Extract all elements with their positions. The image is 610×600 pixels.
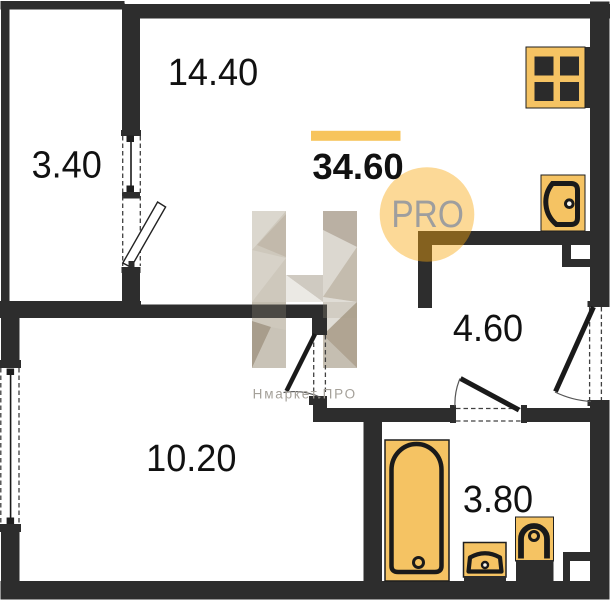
svg-text:3.40: 3.40 <box>32 143 102 186</box>
svg-text:34.60: 34.60 <box>312 146 403 187</box>
svg-text:14.40: 14.40 <box>168 50 258 93</box>
svg-text:PRO: PRO <box>391 193 463 235</box>
svg-text:3.80: 3.80 <box>463 477 533 520</box>
svg-text:10.20: 10.20 <box>146 436 236 479</box>
svg-text:Нмаркет.ПРО: Нмаркет.ПРО <box>253 387 357 402</box>
svg-text:4.60: 4.60 <box>453 306 523 349</box>
